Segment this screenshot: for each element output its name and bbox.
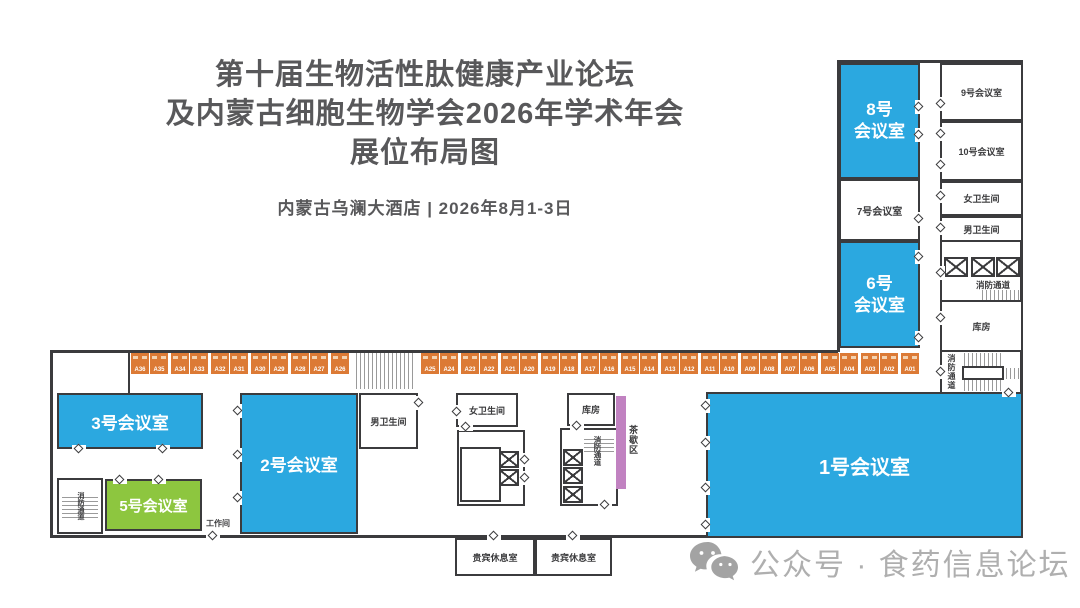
title-line-3: 展位布局图	[55, 134, 795, 173]
room-1-label: 1号会议室	[819, 451, 910, 480]
booth-A17: A17	[581, 353, 599, 374]
page-title: 第十届生物活性肽健康产业论坛 及内蒙古细胞生物学会2026年学术年会 展位布局图…	[55, 56, 795, 219]
room-5: 5号会议室	[105, 479, 202, 531]
elevator-icon	[499, 451, 519, 468]
mens-restroom-mid-label: 男卫生间	[370, 415, 406, 428]
elevator-icon	[563, 449, 583, 466]
fire-escape-core-b-label: 消防通道	[592, 436, 603, 494]
floor-plan-page: 第十届生物活性肽健康产业论坛 及内蒙古细胞生物学会2026年学术年会 展位布局图…	[0, 0, 1080, 608]
door-marker	[937, 266, 945, 280]
booth-A03: A03	[861, 353, 879, 374]
booth-A10: A10	[720, 353, 738, 374]
booth-A08: A08	[760, 353, 778, 374]
stairs-hatch-top-right	[982, 290, 1020, 300]
door-marker	[459, 423, 473, 431]
booth-A16: A16	[600, 353, 618, 374]
womens-restroom-top-label: 女卫生间	[963, 192, 999, 205]
room-8-label-line1: 8号	[866, 99, 892, 121]
womens-restroom-mid-label: 女卫生间	[469, 404, 505, 417]
room-8: 8号 会议室	[839, 63, 920, 179]
elevator-icon	[996, 257, 1020, 277]
subtitle: 内蒙古乌澜大酒店 | 2026年8月1-3日	[55, 194, 795, 219]
room-6-label-line2: 会议室	[854, 295, 905, 317]
mens-restroom-top-label: 男卫生间	[963, 223, 999, 236]
door-marker	[937, 97, 945, 111]
booth-A12: A12	[680, 353, 698, 374]
elevator-icon	[563, 467, 583, 484]
door-marker	[915, 100, 923, 114]
door-marker	[415, 396, 423, 410]
storage-top-label: 库房	[972, 320, 990, 333]
room-1: 1号会议室	[706, 392, 1023, 538]
door-marker	[915, 250, 923, 264]
vip-lounge-2-label: 贵宾休息室	[551, 551, 596, 564]
booth-A11: A11	[701, 353, 719, 374]
booth-A20: A20	[520, 353, 538, 374]
footer-text: 公众号 · 食药信息论坛	[750, 540, 1071, 584]
room-7-label: 7号会议室	[857, 203, 903, 218]
door-marker	[152, 476, 166, 484]
fire-escape-southwest-label: 消防通道	[75, 492, 85, 520]
door-marker	[521, 471, 529, 485]
room-9: 9号会议室	[940, 63, 1023, 121]
door-marker	[937, 158, 945, 172]
door-marker	[937, 127, 945, 141]
door-marker	[915, 128, 923, 142]
room-6-label-line1: 6号	[866, 273, 892, 295]
title-line-2: 及内蒙古细胞生物学会2026年学术年会	[55, 95, 795, 134]
booth-A04: A04	[840, 353, 858, 374]
room-8-label-line2: 会议室	[854, 121, 905, 143]
booth-A02: A02	[880, 353, 898, 374]
title-line-1: 第十届生物活性肽健康产业论坛	[55, 56, 795, 95]
wechat-icon	[688, 540, 740, 584]
booth-A15: A15	[621, 353, 639, 374]
booth-A09: A09	[741, 353, 759, 374]
door-marker	[72, 445, 86, 453]
vip-lounge-2: 贵宾休息室	[535, 538, 612, 576]
vip-lounge-1-label: 贵宾休息室	[472, 551, 517, 564]
elevator-icon	[563, 486, 583, 503]
elevator-icon	[499, 469, 519, 486]
workroom-label: 工作间	[196, 518, 240, 529]
booth-A22: A22	[480, 353, 498, 374]
door-marker	[206, 532, 220, 540]
storage-top: 库房	[940, 300, 1023, 352]
door-marker	[570, 422, 584, 430]
storage-mid-label: 库房	[582, 403, 600, 416]
booth-A01: A01	[901, 353, 919, 374]
mens-restroom-top: 男卫生间	[940, 216, 1023, 242]
door-marker	[937, 221, 945, 235]
door-marker	[1002, 389, 1016, 397]
booth-A07: A07	[781, 353, 799, 374]
door-marker	[521, 453, 529, 467]
booth-A06: A06	[800, 353, 818, 374]
door-marker	[234, 491, 242, 505]
room-10-label: 10号会议室	[958, 145, 1004, 158]
booth-A13: A13	[661, 353, 679, 374]
booth-A23: A23	[461, 353, 479, 374]
room-9-label: 9号会议室	[961, 86, 1002, 99]
fire-escape-right-label: 消防通道	[946, 354, 957, 392]
elevator-icon	[971, 257, 995, 277]
door-marker	[487, 532, 501, 540]
booth-row-right: A25A24A23A22A21A20A19A18A17A16A15A14A13A…	[0, 353, 1080, 375]
room-3: 3号会议室	[57, 393, 203, 449]
tea-area-strip	[616, 396, 626, 489]
door-marker	[915, 331, 923, 345]
door-marker	[234, 448, 242, 462]
door-marker	[915, 212, 923, 226]
booth-A24: A24	[440, 353, 458, 374]
booth-A25: A25	[421, 353, 439, 374]
vip-lounge-1: 贵宾休息室	[455, 538, 535, 576]
booth-A14: A14	[640, 353, 658, 374]
door-marker	[937, 311, 945, 325]
booth-A05: A05	[821, 353, 839, 374]
door-marker	[156, 445, 170, 453]
door-marker	[702, 399, 710, 413]
room-2: 2号会议室	[240, 393, 358, 534]
service-core-a-inner-room	[460, 447, 501, 502]
hall-left-wall	[50, 350, 53, 538]
room-7: 7号会议室	[839, 179, 920, 241]
fire-escape-top-label: 消防通道	[968, 279, 1018, 291]
elevator-icon	[944, 257, 968, 277]
door-marker	[937, 365, 945, 379]
booth-A19: A19	[541, 353, 559, 374]
door-marker	[453, 405, 461, 419]
door-marker	[702, 518, 710, 532]
room-6: 6号 会议室	[839, 241, 920, 348]
footer: 公众号 · 食药信息论坛	[688, 540, 1071, 584]
room-3-label: 3号会议室	[91, 409, 168, 434]
tea-area-label: 茶歇区	[627, 425, 640, 471]
door-marker	[598, 501, 612, 509]
room-5-label: 5号会议室	[119, 495, 187, 516]
booth-A21: A21	[501, 353, 519, 374]
room-10: 10号会议室	[940, 121, 1023, 181]
mens-restroom-mid: 男卫生间	[359, 393, 418, 449]
fire-escape-southwest: 消防通道	[57, 478, 103, 534]
door-marker	[937, 189, 945, 203]
booth-A18: A18	[560, 353, 578, 374]
womens-restroom-top: 女卫生间	[940, 181, 1023, 216]
door-marker	[702, 436, 710, 450]
door-marker	[113, 476, 127, 484]
door-marker	[566, 532, 580, 540]
door-marker	[234, 404, 242, 418]
room-2-label: 2号会议室	[260, 451, 337, 476]
door-marker	[702, 481, 710, 495]
